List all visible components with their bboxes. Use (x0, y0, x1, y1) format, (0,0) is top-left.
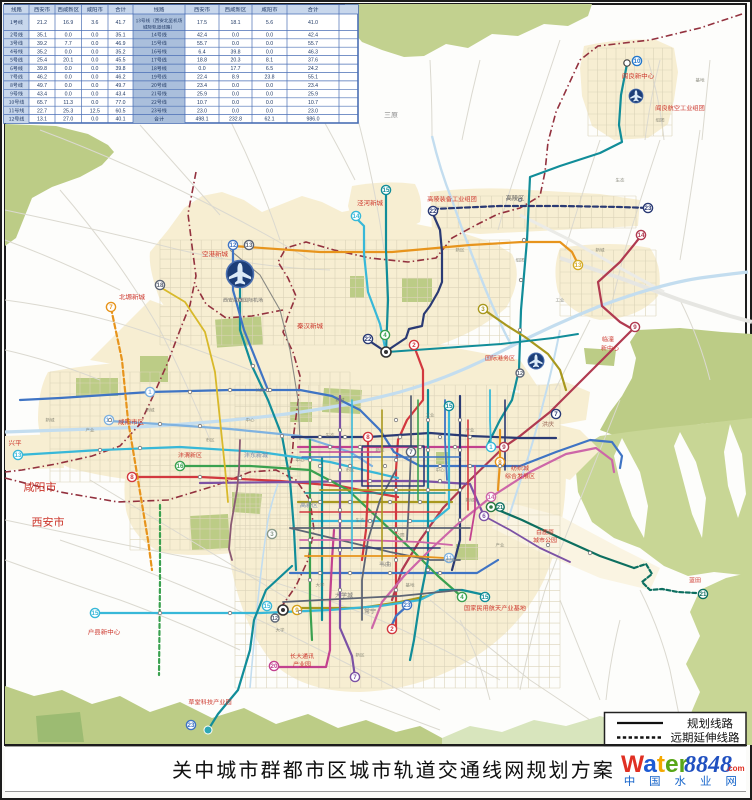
svg-text:0.0: 0.0 (65, 66, 72, 72)
svg-text:10.7: 10.7 (197, 100, 207, 106)
svg-text:25.4: 25.4 (37, 58, 47, 64)
svg-text:9: 9 (633, 324, 637, 331)
svg-text:Water: Water (621, 751, 689, 778)
svg-text:12: 12 (230, 242, 237, 249)
svg-text:35.2: 35.2 (115, 49, 125, 55)
svg-text:0.0: 0.0 (91, 100, 98, 106)
svg-text:77.0: 77.0 (115, 100, 125, 106)
svg-text:6: 6 (482, 513, 486, 520)
svg-text:8: 8 (366, 434, 370, 441)
svg-text:16: 16 (177, 463, 184, 470)
svg-text:0.0: 0.0 (266, 49, 273, 55)
svg-text:25.9: 25.9 (308, 91, 318, 97)
svg-text:8.9: 8.9 (232, 75, 239, 81)
svg-text:7: 7 (409, 449, 413, 456)
svg-text:17.5: 17.5 (197, 20, 207, 26)
svg-text:0.0: 0.0 (91, 41, 98, 47)
svg-text:14: 14 (638, 232, 645, 239)
svg-text:498.1: 498.1 (196, 117, 209, 123)
svg-text:23.0: 23.0 (197, 108, 207, 114)
svg-text:4: 4 (383, 332, 387, 339)
svg-text:1: 1 (148, 389, 152, 396)
svg-text:46.2: 46.2 (115, 75, 125, 81)
svg-text:7: 7 (554, 411, 558, 418)
svg-text:60.5: 60.5 (115, 108, 125, 114)
svg-text:40.1: 40.1 (115, 117, 125, 123)
svg-text:8848: 8848 (684, 752, 732, 778)
svg-text:10.7: 10.7 (308, 100, 318, 106)
svg-text:46.3: 46.3 (308, 49, 318, 55)
svg-text:0.0: 0.0 (198, 66, 205, 72)
svg-text:41.0: 41.0 (308, 20, 318, 26)
svg-text:43.4: 43.4 (37, 91, 47, 97)
svg-text:7: 7 (353, 674, 357, 681)
svg-text:0.0: 0.0 (91, 33, 98, 39)
svg-text:22: 22 (365, 336, 372, 343)
svg-text:46.2: 46.2 (37, 75, 47, 81)
svg-text:0.0: 0.0 (266, 41, 273, 47)
svg-text:45.5: 45.5 (115, 58, 125, 64)
svg-text:0.0: 0.0 (266, 108, 273, 114)
svg-text:0.0: 0.0 (65, 49, 72, 55)
svg-text:35.1: 35.1 (115, 33, 125, 39)
svg-text:17.7: 17.7 (230, 66, 240, 72)
svg-text:0.0: 0.0 (65, 75, 72, 81)
svg-text:8: 8 (130, 474, 134, 481)
svg-text:18.8: 18.8 (197, 58, 207, 64)
svg-text:20.1: 20.1 (63, 58, 73, 64)
svg-text:986.0: 986.0 (307, 117, 320, 123)
svg-text:0.0: 0.0 (91, 91, 98, 97)
svg-text:23: 23 (645, 205, 652, 212)
svg-text:20: 20 (271, 663, 278, 670)
svg-text:3.6: 3.6 (91, 20, 98, 26)
svg-text:0.0: 0.0 (65, 33, 72, 39)
svg-text:0.0: 0.0 (266, 83, 273, 89)
svg-text:55.1: 55.1 (308, 75, 318, 81)
svg-text:5.6: 5.6 (266, 20, 273, 26)
svg-text:43.4: 43.4 (115, 91, 125, 97)
svg-text:0.0: 0.0 (232, 91, 239, 97)
svg-text:55.7: 55.7 (308, 41, 318, 47)
svg-text:23.4: 23.4 (197, 83, 207, 89)
svg-text:3: 3 (270, 531, 274, 538)
svg-text:7: 7 (109, 304, 113, 311)
svg-text:42.4: 42.4 (308, 33, 318, 39)
svg-text:15: 15 (264, 603, 271, 610)
svg-text:0.0: 0.0 (232, 108, 239, 114)
svg-text:39.2: 39.2 (37, 41, 47, 47)
svg-text:35.2: 35.2 (37, 49, 47, 55)
svg-text:3: 3 (481, 306, 485, 313)
svg-text:39.8: 39.8 (37, 66, 47, 72)
svg-text:0.0: 0.0 (91, 58, 98, 64)
svg-text:10: 10 (634, 58, 641, 65)
svg-text:27.0: 27.0 (63, 117, 73, 123)
svg-text:23: 23 (188, 722, 195, 729)
svg-text:13: 13 (15, 452, 22, 459)
svg-text:0.0: 0.0 (65, 83, 72, 89)
svg-text:35.1: 35.1 (37, 33, 47, 39)
svg-text:0.0: 0.0 (232, 83, 239, 89)
svg-text:0.0: 0.0 (232, 33, 239, 39)
svg-text:15: 15 (92, 610, 99, 617)
svg-text:14: 14 (353, 213, 360, 220)
svg-text:15: 15 (446, 403, 453, 410)
svg-text:55.7: 55.7 (197, 41, 207, 47)
svg-text:13: 13 (246, 242, 253, 249)
svg-text:9: 9 (502, 444, 506, 451)
svg-text:42.4: 42.4 (197, 33, 207, 39)
svg-text:21: 21 (700, 591, 707, 598)
svg-text:62.1: 62.1 (264, 117, 274, 123)
svg-text:7.7: 7.7 (65, 41, 72, 47)
svg-text:0.0: 0.0 (91, 83, 98, 89)
svg-text:2: 2 (390, 626, 394, 633)
svg-text:0.0: 0.0 (91, 117, 98, 123)
svg-text:25.3: 25.3 (63, 108, 73, 114)
svg-text:0.0: 0.0 (91, 75, 98, 81)
svg-text:13: 13 (575, 262, 582, 269)
svg-text:23: 23 (404, 602, 411, 609)
svg-text:12: 12 (517, 371, 523, 377)
svg-text:15: 15 (383, 187, 390, 194)
svg-text:23.8: 23.8 (264, 75, 274, 81)
svg-text:18.1: 18.1 (230, 20, 240, 26)
svg-text:11.3: 11.3 (63, 100, 73, 106)
svg-text:2: 2 (412, 342, 416, 349)
svg-text:14: 14 (488, 494, 495, 501)
svg-text:15: 15 (482, 594, 489, 601)
svg-text:23.0: 23.0 (308, 108, 318, 114)
svg-text:0.0: 0.0 (232, 41, 239, 47)
svg-text:39.8: 39.8 (115, 66, 125, 72)
svg-text:23.4: 23.4 (308, 83, 318, 89)
svg-text:0.0: 0.0 (232, 100, 239, 106)
svg-text:.com: .com (726, 764, 745, 773)
svg-text:22: 22 (430, 208, 437, 215)
svg-text:0.0: 0.0 (91, 49, 98, 55)
svg-text:37.6: 37.6 (308, 58, 318, 64)
svg-text:21.2: 21.2 (37, 20, 47, 26)
svg-text:49.7: 49.7 (115, 83, 125, 89)
svg-text:0.0: 0.0 (91, 66, 98, 72)
svg-text:49.7: 49.7 (37, 83, 47, 89)
svg-text:25.9: 25.9 (197, 91, 207, 97)
svg-text:0.0: 0.0 (65, 91, 72, 97)
svg-text:18: 18 (157, 282, 164, 289)
svg-text:22.4: 22.4 (197, 75, 207, 81)
svg-text:6.5: 6.5 (266, 66, 273, 72)
svg-text:16.9: 16.9 (63, 20, 73, 26)
svg-text:21: 21 (497, 505, 503, 511)
svg-text:6.4: 6.4 (198, 49, 205, 55)
svg-text:46.9: 46.9 (115, 41, 125, 47)
svg-text:65.7: 65.7 (37, 100, 47, 106)
svg-text:0.0: 0.0 (266, 33, 273, 39)
svg-text:41.7: 41.7 (115, 20, 125, 26)
svg-text:24.2: 24.2 (308, 66, 318, 72)
svg-text:1: 1 (489, 444, 493, 451)
svg-text:22.7: 22.7 (37, 108, 47, 114)
svg-text:232.8: 232.8 (229, 117, 242, 123)
svg-text:4: 4 (460, 594, 464, 601)
svg-text:20.3: 20.3 (230, 58, 240, 64)
svg-text:0.0: 0.0 (266, 91, 273, 97)
svg-text:8.1: 8.1 (266, 58, 273, 64)
svg-text:39.8: 39.8 (230, 49, 240, 55)
svg-text:12.5: 12.5 (90, 108, 100, 114)
svg-text:13.1: 13.1 (37, 117, 47, 123)
svg-text:12: 12 (272, 616, 278, 622)
svg-text:0.0: 0.0 (266, 100, 273, 106)
